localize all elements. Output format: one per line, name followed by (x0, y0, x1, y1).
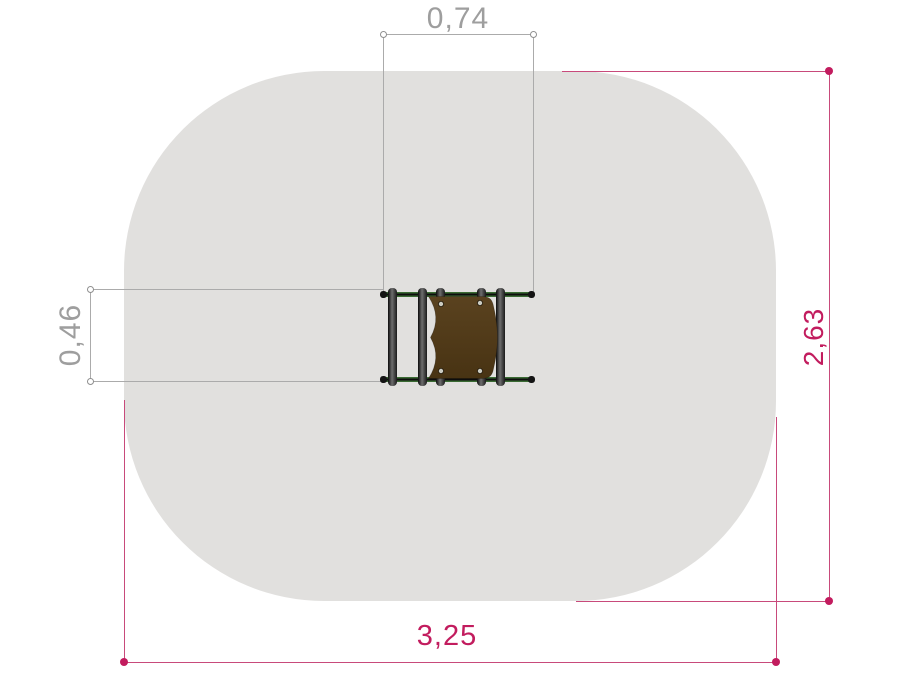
dim-endpoint-circle (87, 286, 94, 293)
dim-endpoint-circle (87, 378, 94, 385)
dim-extension-left-top (90, 289, 383, 290)
dim-label-left-depth: 0,46 (55, 275, 87, 395)
rail-end-cap (528, 291, 535, 298)
post (388, 288, 397, 386)
dim-endpoint-dot (772, 658, 780, 666)
dim-endpoint-circle (530, 31, 537, 38)
screw-hole (438, 301, 443, 306)
post (418, 288, 427, 386)
dim-line-left-depth (90, 289, 91, 381)
rail-end-cap (380, 376, 387, 383)
dim-extension-top-left (383, 34, 384, 293)
rail-end-cap (528, 376, 535, 383)
rail-end-cap (380, 291, 387, 298)
screw-hole (477, 368, 482, 373)
dim-extension-top-right (533, 34, 534, 293)
dim-endpoint-dot (825, 67, 833, 75)
dim-extension-right-top (562, 71, 829, 72)
dim-line-bottom-width (124, 662, 776, 663)
dim-label-bottom-width: 3,25 (377, 620, 517, 652)
dim-endpoint-dot (120, 658, 128, 666)
dim-label-right-height: 2,63 (798, 277, 830, 397)
dim-extension-bottom-left (124, 400, 125, 662)
screw-hole (477, 300, 482, 305)
dim-extension-left-bottom (90, 381, 383, 382)
technical-drawing-canvas: 0,74 0,46 2,63 3,25 (0, 0, 900, 675)
screw-hole (438, 368, 443, 373)
dim-endpoint-dot (825, 597, 833, 605)
dim-label-top-width: 0,74 (398, 3, 518, 35)
seat-panel-shape (429, 297, 498, 379)
dim-extension-right-bottom (576, 601, 829, 602)
seat-panel (427, 296, 503, 379)
dim-endpoint-circle (380, 31, 387, 38)
dim-extension-bottom-right (776, 417, 777, 662)
